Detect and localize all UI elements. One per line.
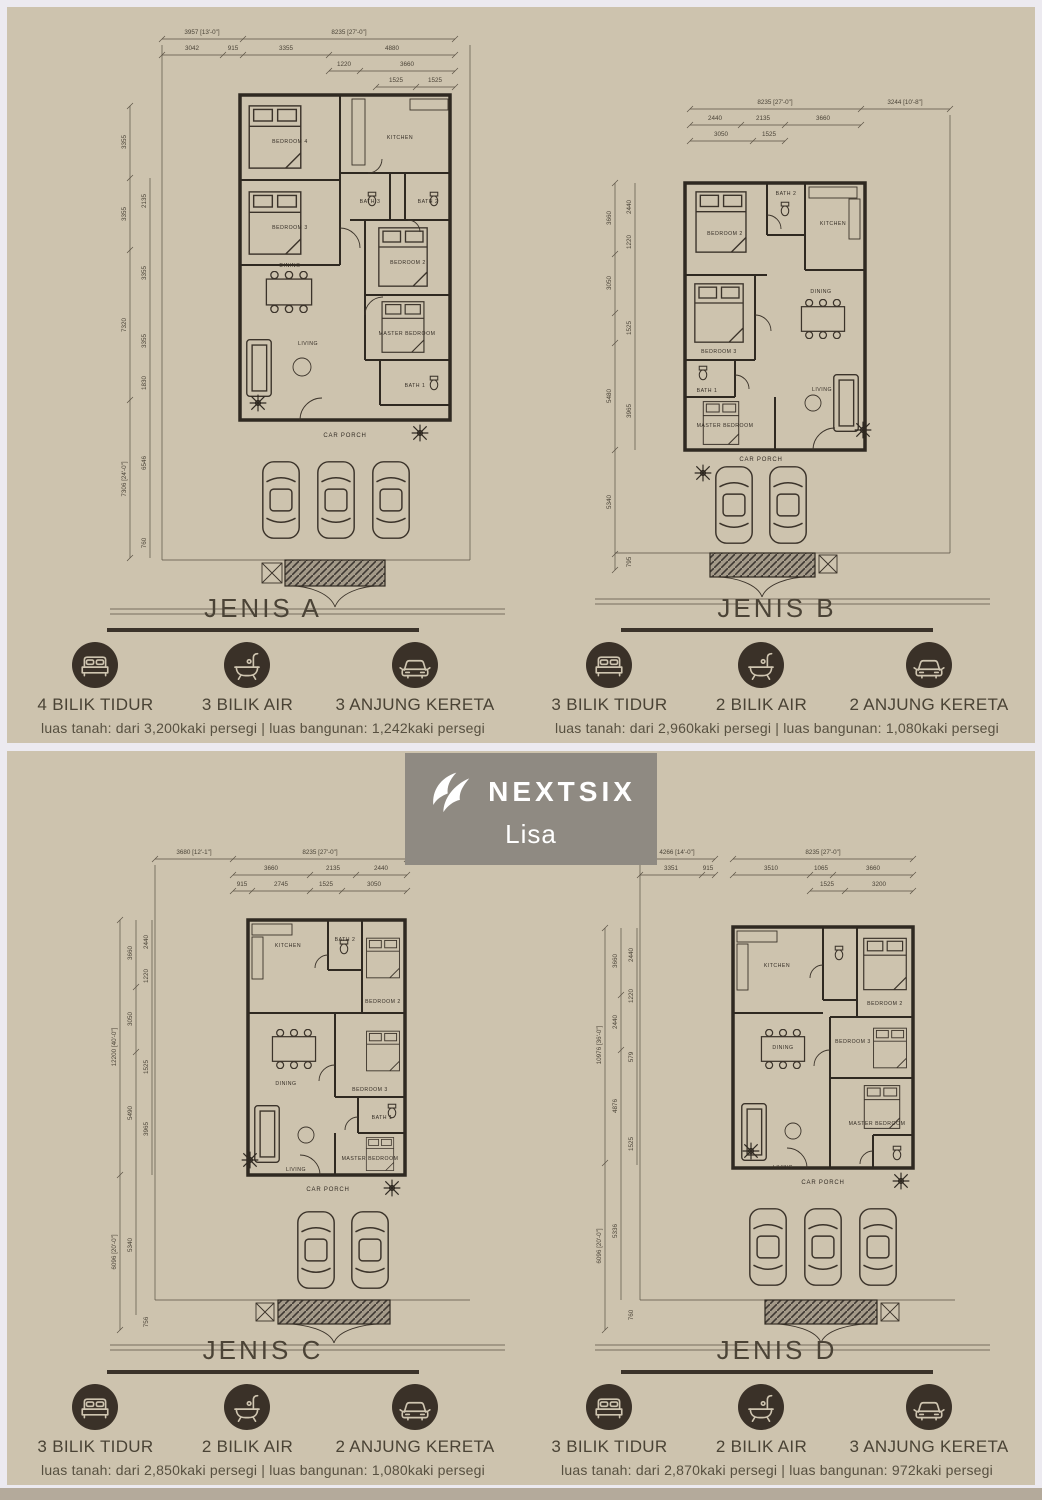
room-label: LIVING (286, 1167, 306, 1173)
feature-bathrooms: 2 BILIK AIR (697, 1384, 825, 1457)
dim-label: 3660 (127, 946, 134, 961)
feature-label: 3 BILIK TIDUR (37, 1437, 153, 1457)
dim-label: 1830 (141, 376, 148, 391)
area-specs: luas tanah: dari 2,960kaki persegi | lua… (555, 720, 999, 736)
dim-label: 3660 (606, 211, 613, 226)
dim-label: 1065 (814, 865, 829, 872)
feature-bedrooms: 3 BILIK TIDUR (31, 1384, 159, 1457)
dim-label: 1220 (628, 989, 635, 1004)
feature-bathrooms: 2 BILIK AIR (697, 642, 825, 715)
unit-b-summary: JENIS B 3 BILIK TIDUR 2 BILIK AIR 2 ANJU… (519, 593, 1035, 736)
room-label: LIVING (812, 387, 832, 393)
dim-label: 1525 (820, 881, 835, 888)
plan-title: JENIS B (717, 593, 836, 624)
dim-label: 1525 (626, 321, 633, 336)
agent-name: Lisa (505, 819, 557, 850)
feature-carporch: 3 ANJUNG KERETA (335, 642, 494, 715)
dim-label: 579 (628, 1051, 635, 1062)
feature-carporch: 2 ANJUNG KERETA (335, 1384, 494, 1457)
bed-icon (72, 642, 118, 688)
room-label: BATH 3 (360, 199, 381, 205)
room-label: KITCHEN (764, 963, 790, 969)
room-label: BATH 2 (335, 937, 356, 943)
dim-label: 760 (141, 537, 148, 548)
feature-label: 2 BILIK AIR (716, 1437, 807, 1457)
features-row: 4 BILIK TIDUR 3 BILIK AIR 3 ANJUNG KERET… (31, 642, 494, 715)
dim-label: 915 (703, 865, 714, 872)
dim-label: 6096 [20'-0"] (111, 1234, 118, 1270)
dim-label: 915 (228, 45, 239, 52)
feature-carporch: 3 ANJUNG KERETA (849, 1384, 1008, 1457)
room-label: MASTER BEDROOM (379, 331, 436, 337)
dim-label: 3660 (816, 115, 831, 122)
dim-label: 8235 [27'-0"] (757, 99, 793, 106)
feature-label: 2 ANJUNG KERETA (335, 1437, 494, 1457)
furniture-b (695, 187, 872, 543)
room-label: MASTER BEDROOM (849, 1121, 906, 1127)
room-labels-c: KITCHEN BATH 2 BEDROOM 2 DINING BEDROOM … (275, 937, 401, 1193)
bed-icon (586, 642, 632, 688)
room-label: DINING (275, 1081, 296, 1087)
plan-title: JENIS C (203, 1335, 324, 1366)
bath-icon (738, 642, 784, 688)
watermark-box: NEXTSIX Lisa (405, 753, 657, 865)
features-row: 3 BILIK TIDUR 2 BILIK AIR 2 ANJUNG KERET… (545, 642, 1008, 715)
dim-label: 795 (626, 556, 633, 567)
unit-d-summary: JENIS D 3 BILIK TIDUR 2 BILIK AIR 3 ANJU… (519, 1335, 1035, 1478)
features-row: 3 BILIK TIDUR 2 BILIK AIR 2 ANJUNG KERET… (31, 1384, 494, 1457)
dim-label: 4880 (385, 45, 400, 52)
dim-label: 1220 (143, 969, 150, 984)
dim-label: 3042 (185, 45, 200, 52)
dim-label: 8235 [27'-0"] (805, 849, 841, 856)
panel-top: 3957 [13'-0"] 8235 [27'-0"] 3042 915 335… (7, 7, 1035, 743)
dim-label: 3355 (141, 334, 148, 349)
bed-icon (72, 1384, 118, 1430)
dim-label: 3355 (121, 207, 128, 222)
feature-carporch: 2 ANJUNG KERETA (849, 642, 1008, 715)
room-label: BATH 2 (418, 199, 439, 205)
dim-label: 5480 (606, 389, 613, 404)
room-label: BEDROOM 3 (835, 1039, 871, 1045)
dim-label: 3965 (143, 1122, 150, 1137)
dims-left-b: 3660 3050 5480 5340 2440 1220 1525 3965 … (606, 180, 635, 573)
feature-label: 3 BILIK TIDUR (551, 1437, 667, 1457)
floorplan-d-svg: 4266 [14'-0"] 8235 [27'-0"] 3351 915 351… (595, 835, 990, 1355)
dim-label: 3355 (141, 266, 148, 281)
unit-jenis-a: 3957 [13'-0"] 8235 [27'-0"] 3042 915 335… (7, 7, 519, 743)
car-icon (392, 642, 438, 688)
dim-label: 4876 (612, 1099, 619, 1114)
plan-title: JENIS D (717, 1335, 838, 1366)
dims-top-c: 3680 [12'-1"] 8235 [27'-0"] 3660 2135 24… (152, 849, 410, 894)
feature-bedrooms: 4 BILIK TIDUR (31, 642, 159, 715)
dim-label: 3050 (367, 881, 382, 888)
room-label: BATH 1 (405, 383, 426, 389)
room-label: DINING (279, 263, 300, 269)
dim-label: 2745 (274, 881, 289, 888)
dim-label: 3660 (264, 865, 279, 872)
dims-top-d: 4266 [14'-0"] 8235 [27'-0"] 3351 915 351… (637, 849, 916, 894)
feature-bathrooms: 3 BILIK AIR (183, 642, 311, 715)
dim-label: 1525 (628, 1137, 635, 1152)
room-label: CAR PORCH (739, 457, 782, 463)
room-label: BEDROOM 2 (867, 1001, 903, 1007)
dim-label: 8235 [27'-0"] (302, 849, 338, 856)
room-label: CAR PORCH (801, 1180, 844, 1186)
dim-label: 3244 [10'-8"] (887, 99, 923, 106)
bottom-bar (0, 1488, 1042, 1500)
feature-label: 4 BILIK TIDUR (37, 695, 153, 715)
room-label: BEDROOM 2 (365, 999, 401, 1005)
dim-label: 2440 (612, 1015, 619, 1030)
dim-label: 6546 (141, 456, 148, 471)
dim-label: 1525 (389, 77, 404, 84)
room-label: DINING (772, 1045, 793, 1051)
room-label: BEDROOM 3 (272, 225, 308, 231)
dim-label: 2135 (756, 115, 771, 122)
dim-label: 3510 (764, 865, 779, 872)
bath-icon (224, 1384, 270, 1430)
features-row: 3 BILIK TIDUR 2 BILIK AIR 3 ANJUNG KERET… (545, 1384, 1008, 1457)
dims-top-b: 8235 [27'-0"] 3244 [10'-8"] 2440 2135 36… (687, 99, 953, 144)
floorplan-c-svg: 3680 [12'-1"] 8235 [27'-0"] 3660 2135 24… (110, 835, 505, 1355)
dim-label: 10976 [36'-0"] (596, 1025, 603, 1064)
dim-label: 7306 [24'-0"] (121, 461, 128, 497)
dim-label: 3965 (626, 404, 633, 419)
room-label: DINING (810, 289, 831, 295)
feature-label: 3 BILIK TIDUR (551, 695, 667, 715)
room-label: KITCHEN (820, 221, 846, 227)
bath-icon (738, 1384, 784, 1430)
dim-label: 1525 (143, 1060, 150, 1075)
area-specs: luas tanah: dari 2,850kaki persegi | lua… (41, 1462, 485, 1478)
dim-label: 5490 (127, 1106, 134, 1121)
dim-label: 4266 [14'-0"] (659, 849, 695, 856)
unit-c-summary: JENIS C 3 BILIK TIDUR 2 BILIK AIR 2 ANJU… (7, 1335, 519, 1478)
feature-label: 2 ANJUNG KERETA (849, 695, 1008, 715)
area-specs: luas tanah: dari 2,870kaki persegi | lua… (561, 1462, 993, 1478)
brand-logo: NEXTSIX (426, 769, 636, 815)
room-label: BATH 1 (372, 1115, 393, 1121)
unit-jenis-b: 8235 [27'-0"] 3244 [10'-8"] 2440 2135 36… (519, 7, 1035, 743)
dim-label: 3660 (612, 954, 619, 969)
title-rule (107, 628, 419, 632)
dim-label: 915 (237, 881, 248, 888)
dims-top-a: 3957 [13'-0"] 8235 [27'-0"] 3042 915 335… (159, 29, 458, 90)
feature-label: 3 ANJUNG KERETA (849, 1437, 1008, 1457)
dim-label: 3660 (400, 61, 415, 68)
room-label: BATH 2 (776, 191, 797, 197)
feature-label: 2 BILIK AIR (202, 1437, 293, 1457)
room-label: MASTER BEDROOM (342, 1156, 399, 1162)
car-icon (906, 1384, 952, 1430)
walls-c (248, 920, 405, 1175)
room-label: KITCHEN (387, 135, 413, 141)
room-label: KITCHEN (275, 943, 301, 949)
dim-label: 3355 (279, 45, 294, 52)
room-label: BEDROOM 2 (390, 260, 426, 266)
feature-bedrooms: 3 BILIK TIDUR (545, 1384, 673, 1457)
title-rule (621, 628, 933, 632)
room-label: BEDROOM 3 (701, 349, 737, 355)
dim-label: 2440 (374, 865, 389, 872)
dim-label: 3050 (606, 276, 613, 291)
furniture-c (242, 924, 401, 1288)
room-label: BEDROOM 2 (707, 231, 743, 237)
feature-label: 3 BILIK AIR (202, 695, 293, 715)
dim-label: 3050 (714, 131, 729, 138)
room-label: LIVING (773, 1165, 793, 1171)
walls-d (733, 927, 913, 1168)
bath-icon (224, 642, 270, 688)
room-label: BEDROOM 4 (272, 139, 308, 145)
dim-label: 2135 (141, 194, 148, 209)
dim-label: 3660 (866, 865, 881, 872)
nextsix-swoosh-icon (426, 769, 478, 815)
brand-name: NEXTSIX (488, 776, 636, 808)
floorplan-b-svg: 8235 [27'-0"] 3244 [10'-8"] 2440 2135 36… (595, 85, 990, 605)
dim-label: 3355 (121, 135, 128, 150)
dim-label: 2440 (626, 200, 633, 215)
floorplan-a-svg: 3957 [13'-0"] 8235 [27'-0"] 3042 915 335… (110, 15, 505, 615)
room-label: BATH 1 (697, 388, 718, 394)
dim-label: 3050 (127, 1012, 134, 1027)
dims-left-c: 12200 [40'-0"] 6096 [20'-0"] 3660 3050 5… (111, 917, 152, 1333)
dim-label: 3680 [12'-1"] (176, 849, 212, 856)
dims-left-a: 3355 3355 7320 7306 [24'-0"] 2135 3355 3… (121, 103, 150, 561)
dim-label: 760 (628, 1309, 635, 1320)
dim-label: 756 (143, 1316, 150, 1327)
car-icon (906, 642, 952, 688)
dim-label: 2135 (326, 865, 341, 872)
dim-label: 1525 (319, 881, 334, 888)
dim-label: 5336 (612, 1224, 619, 1239)
dim-label: 1220 (337, 61, 352, 68)
dim-label: 1220 (626, 235, 633, 250)
dim-label: 1525 (428, 77, 443, 84)
dim-label: 1525 (762, 131, 777, 138)
dim-label: 6096 [20'-0"] (596, 1228, 603, 1264)
room-label: BEDROOM 3 (352, 1087, 388, 1093)
title-rule (107, 1370, 419, 1374)
dim-label: 5340 (606, 495, 613, 510)
dim-label: 3200 (872, 881, 887, 888)
car-icon (392, 1384, 438, 1430)
room-label: CAR PORCH (323, 433, 366, 439)
dim-label: 8235 [27'-0"] (331, 29, 367, 36)
room-label: CAR PORCH (306, 1187, 349, 1193)
bed-icon (586, 1384, 632, 1430)
room-label: MASTER BEDROOM (697, 423, 754, 429)
furniture-a (247, 99, 448, 538)
dim-label: 5340 (127, 1238, 134, 1253)
dim-label: 7320 (121, 318, 128, 333)
dim-label: 3957 [13'-0"] (184, 29, 220, 36)
area-specs: luas tanah: dari 3,200kaki persegi | lua… (41, 720, 485, 736)
dim-label: 12200 [40'-0"] (111, 1027, 118, 1066)
dims-left-d: 10976 [36'-0"] 6096 [20'-0"] 3660 2440 4… (596, 925, 637, 1333)
unit-a-summary: JENIS A 4 BILIK TIDUR 3 BILIK AIR 3 ANJU… (7, 593, 519, 736)
feature-label: 2 BILIK AIR (716, 695, 807, 715)
feature-label: 3 ANJUNG KERETA (335, 695, 494, 715)
plan-title: JENIS A (204, 593, 322, 624)
dim-label: 2440 (628, 948, 635, 963)
title-rule (621, 1370, 933, 1374)
dim-label: 3351 (664, 865, 679, 872)
dim-label: 2440 (708, 115, 723, 122)
feature-bathrooms: 2 BILIK AIR (183, 1384, 311, 1457)
room-labels-d: KITCHEN BEDROOM 2 DINING BEDROOM 3 LIVIN… (764, 963, 906, 1186)
room-label: LIVING (298, 341, 318, 347)
feature-bedrooms: 3 BILIK TIDUR (545, 642, 673, 715)
room-labels-b: BEDROOM 2 BATH 2 KITCHEN BEDROOM 3 DININ… (697, 191, 847, 463)
dim-label: 2440 (143, 935, 150, 950)
